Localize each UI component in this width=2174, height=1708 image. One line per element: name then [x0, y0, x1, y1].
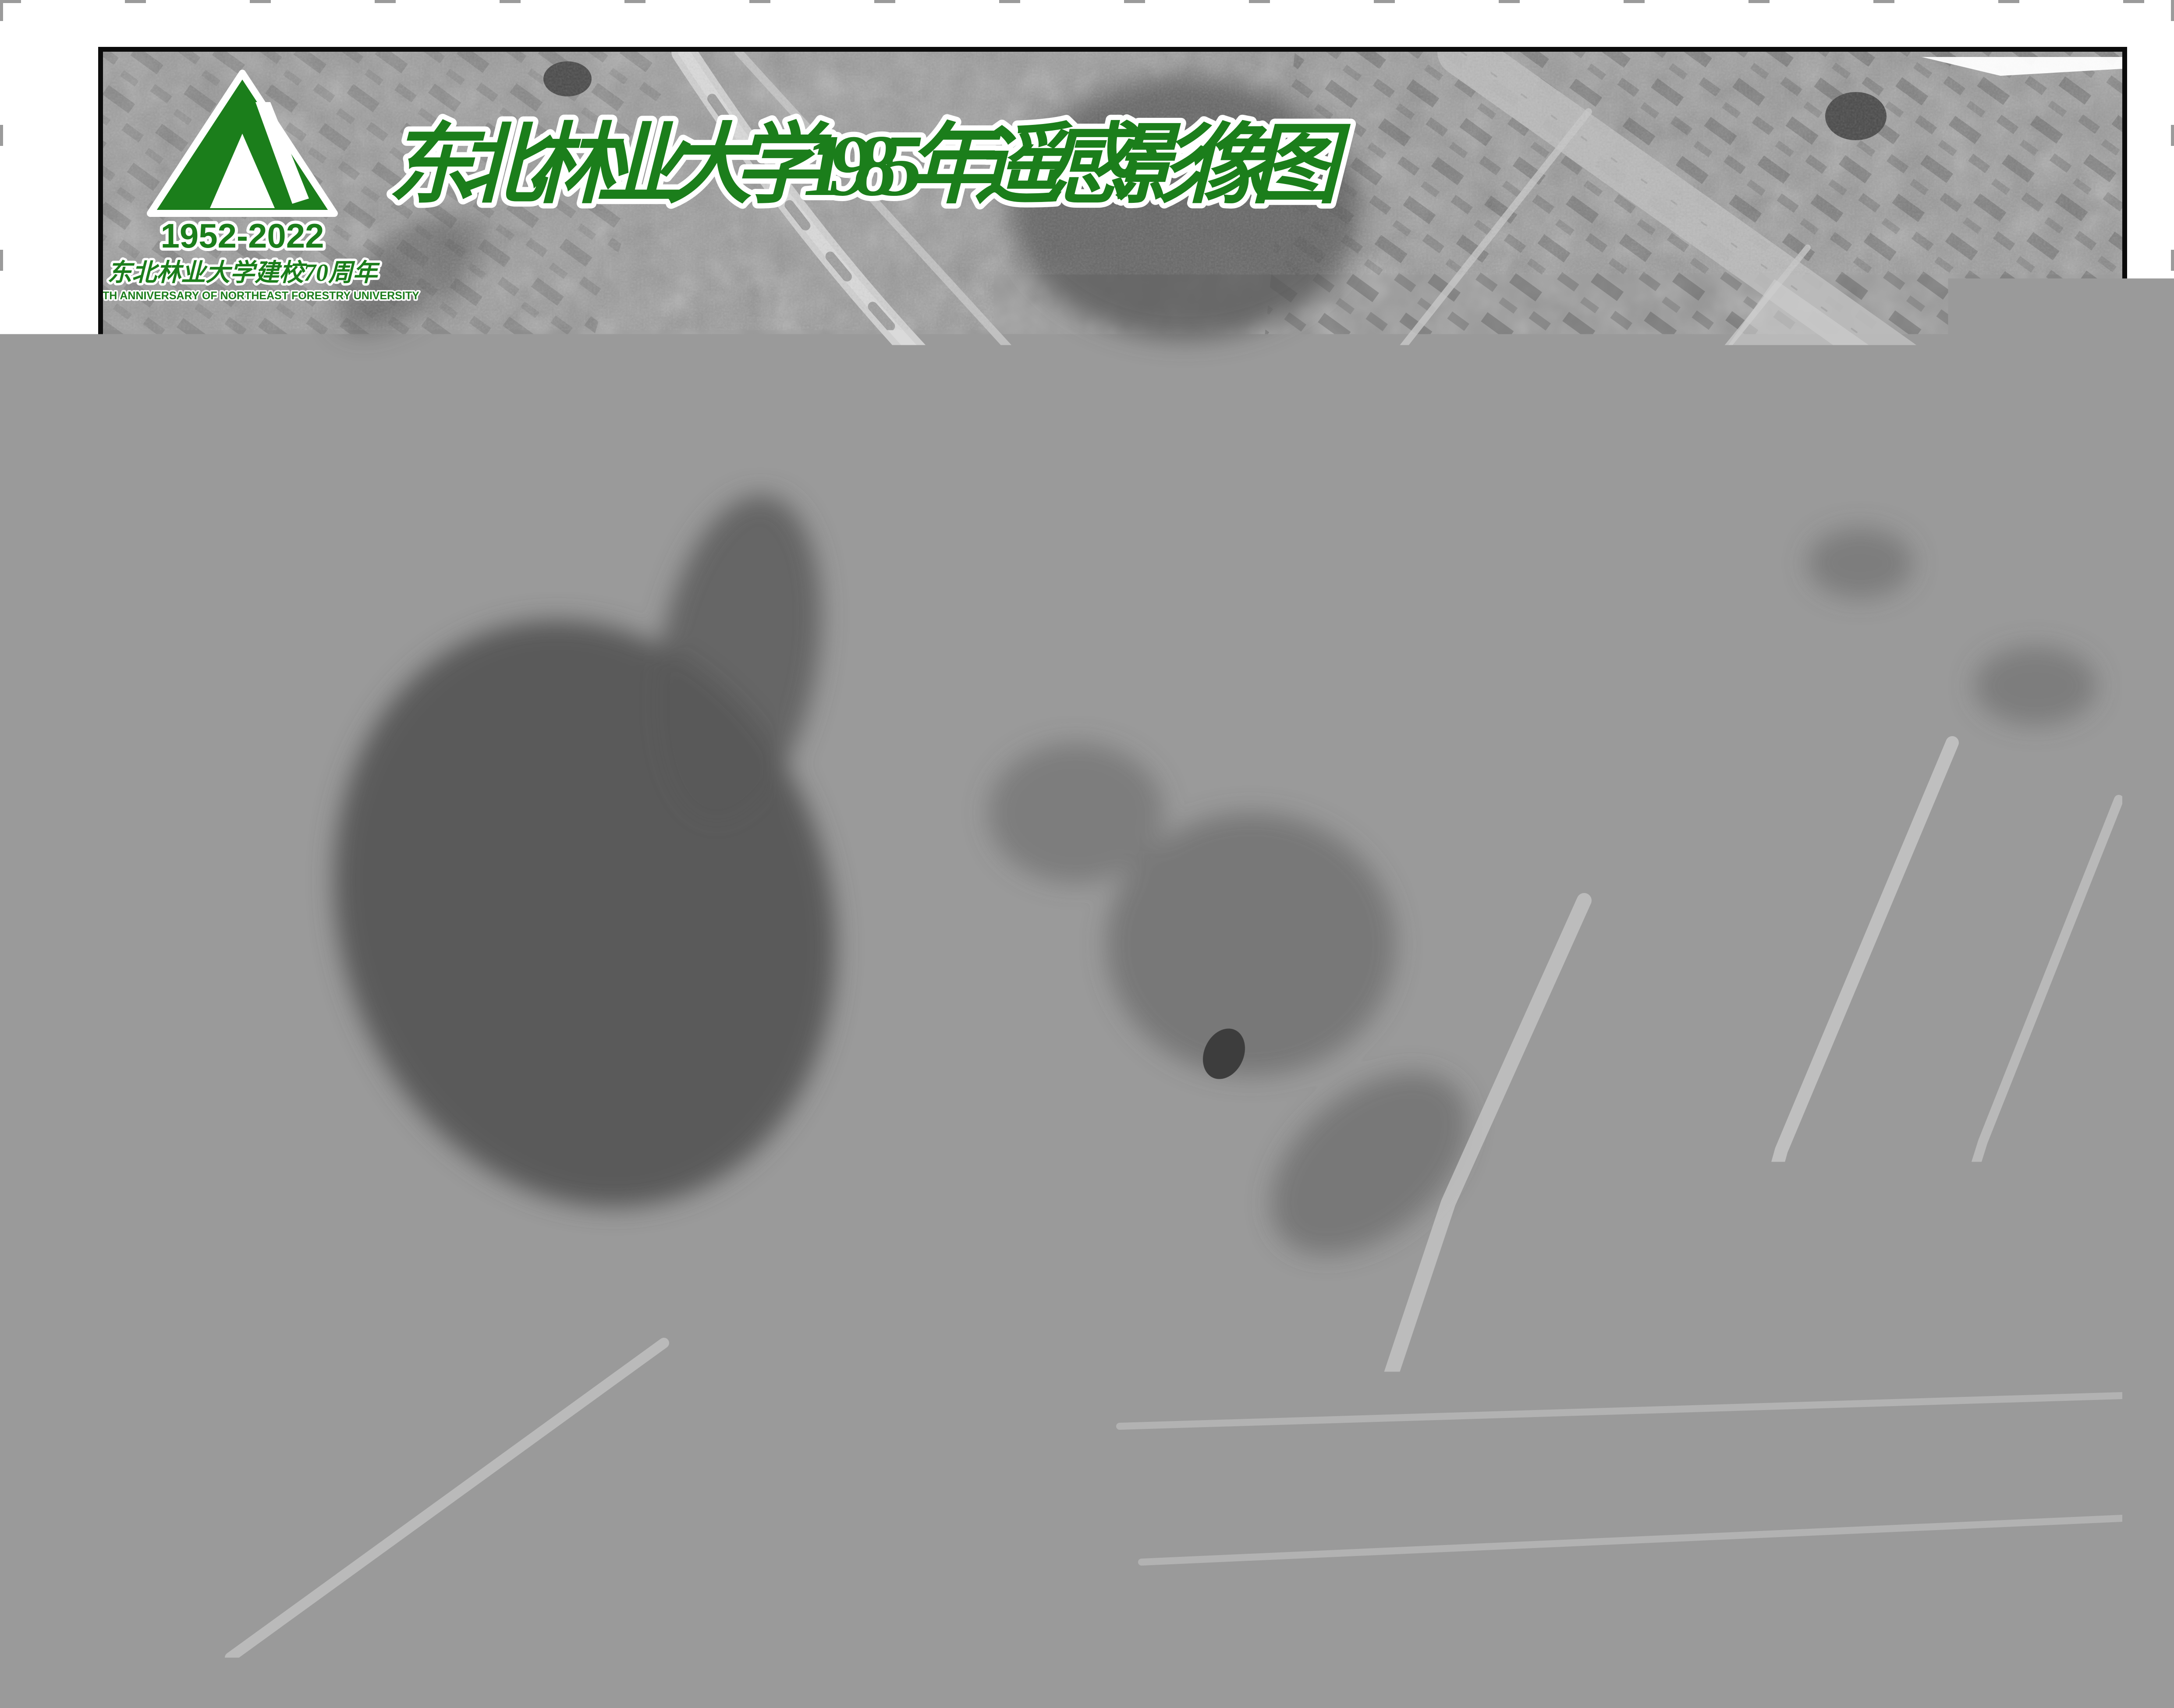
blue-dot-icon: [1892, 1540, 1901, 1548]
satellite-map: 机械楼 理学楼 主楼 生活区 图书馆 体育场 游泳池 家属区 1952-2022…: [103, 52, 2122, 1658]
legend-item-label: 学校范围(示意): [1925, 1572, 2082, 1607]
map-frame: 机械楼 理学楼 主楼 生活区 图书馆 体育场 游泳池 家属区 1952-2022…: [98, 47, 2127, 1662]
building-dot: [1286, 772, 1294, 781]
credits-caption: 东北林业大学 黑龙江省测绘地理信息局 联合编制: [1572, 1666, 2121, 1701]
building-label: 家属区: [1085, 1198, 1146, 1221]
building-dot: [1447, 868, 1456, 877]
building-label: 机械楼: [1392, 647, 1454, 670]
legend-boundary-marker: [1868, 1582, 1925, 1597]
logo-anniversary-cn: 东北林业大学建校70周年: [107, 259, 380, 287]
building-dot: [1153, 992, 1161, 1001]
building-label: 游泳池: [1050, 1095, 1111, 1118]
building-label: 理学楼: [1186, 700, 1248, 723]
building-dot: [1368, 654, 1377, 663]
logo-anniversary-en: THE 70TH ANNIVERSARY OF NORTHEAST FOREST…: [103, 290, 419, 302]
legend-title: 图 例: [1847, 1470, 2105, 1531]
building-label: 图书馆: [1234, 906, 1296, 929]
page: 机械楼 理学楼 主楼 生活区 图书馆 体育场 游泳池 家属区 1952-2022…: [0, 0, 2174, 1708]
sheet-edge-marks-bottom: [0, 1705, 2174, 1708]
building-dot: [1060, 1204, 1069, 1213]
building-label: 体育场: [1177, 986, 1238, 1009]
orange-dotted-line-icon: [1870, 1582, 1922, 1597]
scale-value: 1∶6 000: [1973, 1620, 2065, 1648]
logo-years: 1952-2022: [160, 216, 324, 255]
legend-inner-frame: 图 例 主要建筑位置 学校范围(示意): [1845, 1456, 2107, 1642]
building-dot: [1025, 1101, 1034, 1110]
legend-item-label: 主要建筑位置: [1925, 1527, 2067, 1561]
building-label: 主楼: [1310, 766, 1351, 789]
building-dot: [1162, 706, 1171, 715]
scale-label: 比例尺: [1887, 1621, 1961, 1648]
legend-building-marker: [1868, 1540, 1925, 1548]
map-title: 东北林业大学1985年遥感影像图: [388, 117, 1351, 214]
sheet-edge-marks-right: [2171, 0, 2174, 1708]
building-label: 生活区: [1424, 882, 1486, 906]
legend-box: 图 例 主要建筑位置 学校范围(示意): [1832, 1442, 2120, 1655]
building-dot: [1210, 912, 1219, 921]
legend-scale: 比例尺1∶6 000: [1847, 1614, 2105, 1650]
sheet-edge-marks-top: [0, 0, 2174, 3]
sheet-edge-marks-left: [0, 0, 3, 1708]
